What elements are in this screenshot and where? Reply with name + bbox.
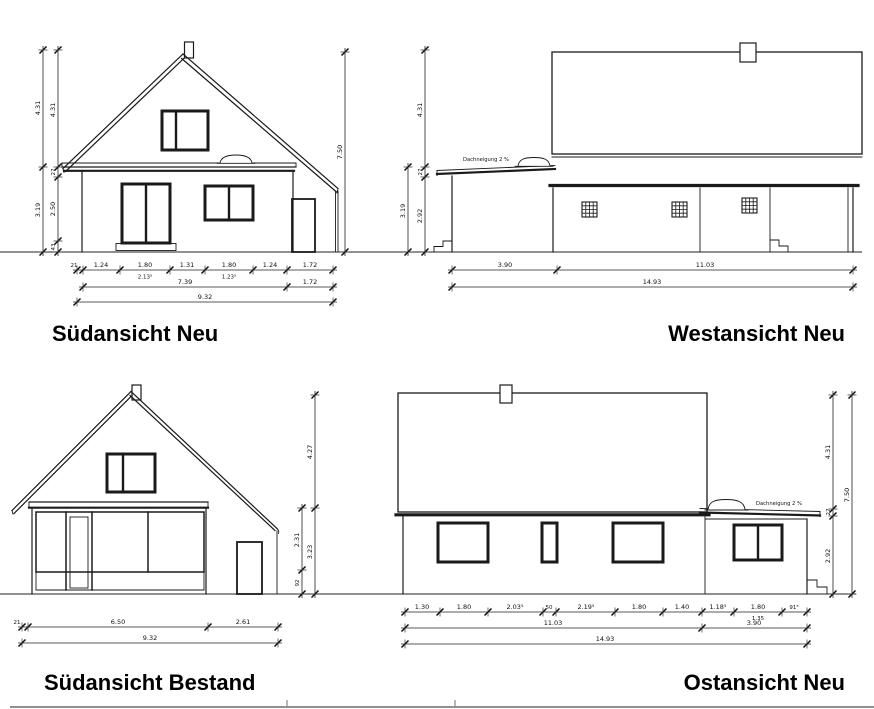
sued-neu-eaves-band bbox=[62, 163, 296, 171]
dim-label: 9.32 bbox=[198, 293, 212, 301]
sued-neu-walls bbox=[82, 171, 338, 252]
dim-label: 11.03 bbox=[544, 619, 563, 627]
dim-label: 3.19 bbox=[34, 203, 42, 217]
bestand-building bbox=[12, 385, 279, 594]
view-suedansicht-neu: 4.31 3.19 4.31 27 2.50 43 7.50 21 1.24 1… bbox=[34, 42, 345, 346]
west-neu-skylight-dome bbox=[518, 158, 550, 167]
ost-neu-window-1 bbox=[438, 523, 488, 562]
dim-label: 1.31 bbox=[180, 261, 194, 269]
west-neu-roof-pitch-note: Dachneigung 2 % bbox=[463, 157, 509, 163]
ost-neu-chimney bbox=[500, 385, 512, 403]
dim-label: 43 bbox=[51, 243, 57, 250]
ost-neu-window-narrow bbox=[542, 523, 557, 562]
view-title-sued-bestand: Südansicht Bestand bbox=[44, 670, 255, 695]
bestand-eaves-band bbox=[29, 502, 208, 508]
bestand-shop-door bbox=[70, 517, 88, 588]
dim-label: 1.80 bbox=[222, 261, 236, 269]
west-neu-walls bbox=[553, 188, 853, 252]
dim-label: 3.90 bbox=[747, 619, 761, 627]
dim-label: 91⁵ bbox=[789, 604, 798, 611]
dim-label: 2.50 bbox=[49, 202, 57, 216]
elevation-sheet: 4.31 3.19 4.31 27 2.50 43 7.50 21 1.24 1… bbox=[0, 0, 874, 709]
dim-label: 1.40 bbox=[675, 603, 689, 611]
dim-label: 1.24 bbox=[94, 261, 108, 269]
dim-label: 2.92 bbox=[416, 209, 424, 223]
west-neu-building bbox=[434, 43, 862, 252]
west-neu-grid-window-2 bbox=[672, 202, 687, 217]
ost-neu-walls bbox=[403, 516, 807, 594]
sheet-edge-ticks bbox=[287, 700, 455, 706]
dim-label: 4.31 bbox=[49, 103, 57, 117]
ost-neu-roof-pitch-note: Dachneigung 2 % bbox=[756, 501, 802, 507]
dim-label: 1.24 bbox=[263, 261, 277, 269]
dim-label: 14.93 bbox=[643, 278, 662, 286]
ost-neu-skylight-dome bbox=[708, 500, 745, 510]
dim-label: 6.50 bbox=[111, 618, 125, 626]
dim-sublabel: 2.13⁵ bbox=[138, 274, 152, 281]
dim-label: 2.61 bbox=[236, 618, 250, 626]
dim-label: 2.92 bbox=[824, 549, 832, 563]
sued-neu-french-door bbox=[116, 184, 176, 251]
dim-label: 1.30 bbox=[415, 603, 429, 611]
dim-label: 2.03⁵ bbox=[506, 603, 523, 611]
sued-neu-roof bbox=[63, 54, 338, 193]
west-neu-grid-window-1 bbox=[582, 202, 597, 217]
view-suedansicht-bestand: 2.31 92 4.27 3.23 21 6.50 2.61 9.32 Süda… bbox=[12, 385, 315, 695]
ost-neu-annex-window bbox=[734, 525, 782, 560]
dim-label: 4.31 bbox=[34, 101, 42, 115]
dim-label: 92 bbox=[295, 580, 301, 587]
ost-neu-steps bbox=[807, 580, 827, 594]
dim-label: 1.72 bbox=[303, 261, 317, 269]
view-ostansicht-neu: Dachneigung 2 % 4.31 27 2.92 7.50 1.30 1… bbox=[396, 385, 852, 695]
dim-label: 7.50 bbox=[336, 145, 344, 159]
dim-label: 14.93 bbox=[596, 635, 615, 643]
dim-label: 1.80 bbox=[751, 603, 765, 611]
dim-label: 2.31 bbox=[293, 533, 301, 547]
dim-label: 4.31 bbox=[824, 445, 832, 459]
dim-label: 7.50 bbox=[843, 488, 851, 502]
bestand-window-upper bbox=[107, 454, 155, 492]
ost-neu-window-2 bbox=[613, 523, 663, 562]
west-neu-chimney bbox=[740, 43, 756, 62]
view-title-sued-neu: Südansicht Neu bbox=[52, 321, 218, 346]
bestand-chimney bbox=[132, 385, 141, 400]
west-neu-steps-right bbox=[770, 240, 788, 252]
west-neu-grid-window-3 bbox=[742, 198, 757, 213]
dim-label: 21 bbox=[71, 263, 78, 269]
dim-label: 1.80 bbox=[457, 603, 471, 611]
dim-label: 4.27 bbox=[306, 445, 314, 459]
dim-label: 1.80 bbox=[138, 261, 152, 269]
ost-neu-building bbox=[396, 385, 827, 594]
dim-sublabel: 1.23⁵ bbox=[222, 274, 236, 281]
dim-label: 11.03 bbox=[696, 261, 715, 269]
dim-label: 3.23 bbox=[306, 545, 314, 559]
view-title-west-neu: Westansicht Neu bbox=[668, 321, 845, 346]
sued-neu-skylight-dome bbox=[217, 155, 255, 163]
dim-label: 4.31 bbox=[416, 103, 424, 117]
view-title-ost-neu: Ostansicht Neu bbox=[684, 670, 845, 695]
drawing-sheet: 4.31 3.19 4.31 27 2.50 43 7.50 21 1.24 1… bbox=[0, 0, 874, 709]
dim-label: 1.80 bbox=[632, 603, 646, 611]
bestand-shopfront bbox=[36, 512, 204, 590]
sued-neu-chimney bbox=[185, 42, 194, 58]
dim-label: 50 bbox=[546, 605, 553, 611]
ost-neu-roof-plane bbox=[398, 393, 707, 512]
sued-neu-building bbox=[62, 42, 338, 252]
dim-label: 1.18⁵ bbox=[709, 603, 726, 611]
dim-label: 3.90 bbox=[498, 261, 512, 269]
sued-neu-window-upper bbox=[162, 111, 208, 150]
bestand-side-door bbox=[237, 542, 262, 594]
sued-neu-window-right bbox=[205, 186, 253, 220]
west-neu-roof-plane bbox=[552, 52, 862, 154]
dim-label: 7.39 bbox=[178, 278, 192, 286]
sued-neu-dimensions: 4.31 3.19 4.31 27 2.50 43 7.50 21 1.24 1… bbox=[34, 46, 345, 302]
dim-label: 2.19⁵ bbox=[577, 603, 594, 611]
bestand-dimensions: 2.31 92 4.27 3.23 21 6.50 2.61 9.32 bbox=[14, 391, 316, 643]
sued-neu-door-sill bbox=[116, 244, 176, 251]
bestand-walls bbox=[32, 508, 277, 594]
dim-label: 1.72 bbox=[303, 278, 317, 286]
dim-label: 3.19 bbox=[399, 204, 407, 218]
sued-neu-side-door bbox=[292, 199, 315, 252]
dim-label: 9.32 bbox=[143, 634, 157, 642]
view-westansicht-neu: Dachneigung 2 % 3.19 4.31 27 2.92 3.90 1… bbox=[399, 43, 862, 346]
west-neu-annex bbox=[434, 158, 555, 253]
west-neu-steps-left bbox=[434, 241, 452, 252]
dim-label: 21 bbox=[14, 620, 21, 626]
